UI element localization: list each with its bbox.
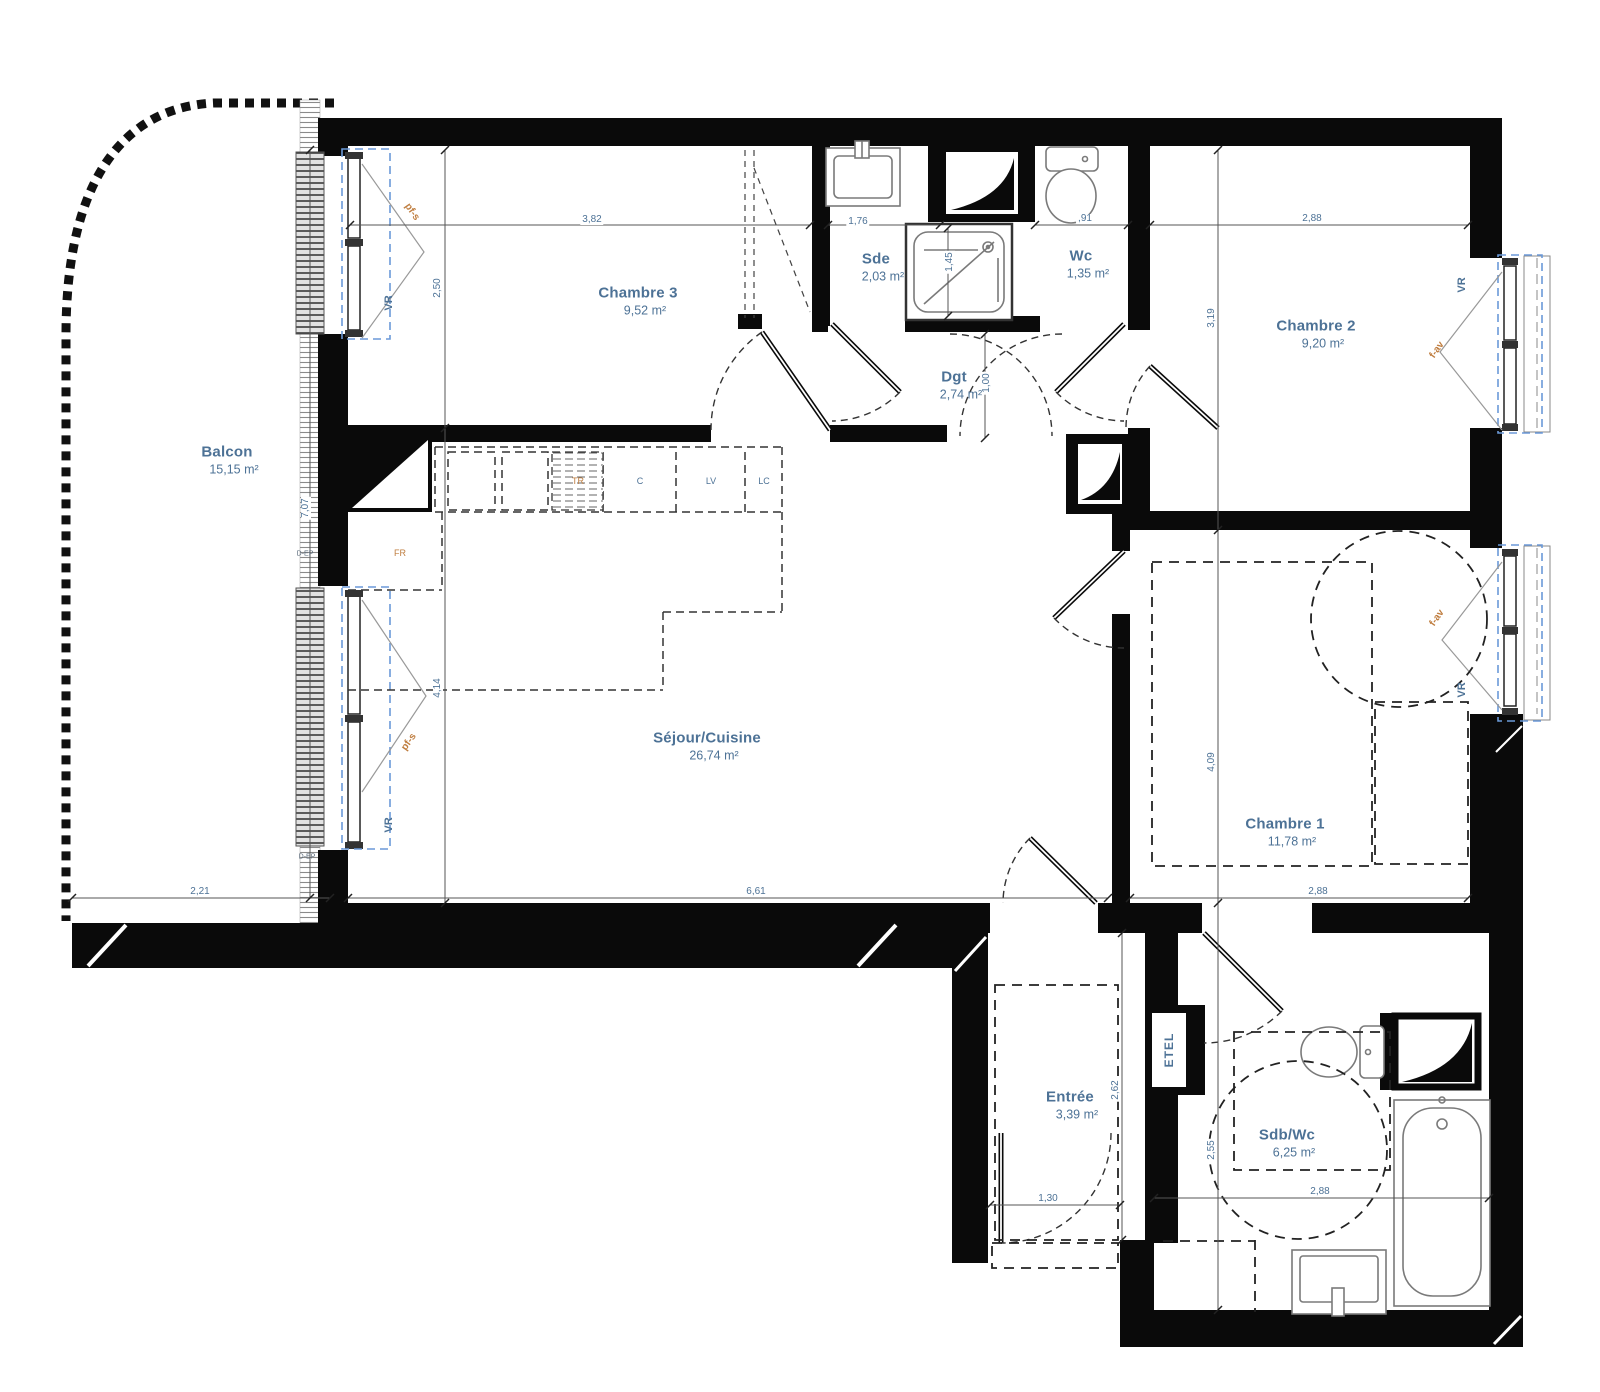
room-label-entree: Entrée 3,39 m² xyxy=(1046,1089,1094,1122)
vr-label-sejour: VR xyxy=(383,817,395,832)
dim-sejour-width: 6,61 xyxy=(744,887,767,897)
sink-drainer-label: TR xyxy=(571,476,585,486)
dim-entree-height: 2,62 xyxy=(1111,1078,1121,1101)
dim-balcon-width: 2,21 xyxy=(188,887,211,897)
dim-shower-height: 1,45 xyxy=(945,250,955,273)
sdb-toilet-icon xyxy=(1301,1026,1384,1078)
doormat-outline xyxy=(992,1243,1118,1268)
rain-pipe-label-2: D-EP xyxy=(299,854,316,861)
sde-sink-icon xyxy=(826,141,900,206)
room-label-chambre1: Chambre 1 11,78 m² xyxy=(1245,816,1324,849)
vr-label-chambre3: VR xyxy=(383,295,395,310)
dim-sde-width: 1,76 xyxy=(846,217,869,227)
turning-circle-chambre1 xyxy=(1311,531,1487,707)
bathtub-icon xyxy=(1394,1097,1490,1306)
room-label-chambre2: Chambre 2 9,20 m² xyxy=(1276,318,1355,351)
walls xyxy=(72,118,1523,1347)
room-label-wc: Wc 1,35 m² xyxy=(1060,248,1102,281)
washer-column-label: LC xyxy=(757,476,771,486)
room-label-sejour: Séjour/Cuisine 26,74 m² xyxy=(653,730,761,763)
dim-entree-width: 1,30 xyxy=(1036,1194,1059,1204)
room-label-sde: Sde 2,03 m² xyxy=(855,251,897,284)
fridge-label: FR xyxy=(393,548,407,558)
dishwasher-label: LV xyxy=(705,476,717,486)
rain-pipe-label-1: D-EP xyxy=(297,551,314,558)
window-sejour xyxy=(296,587,426,849)
dim-sdb-width: 2,88 xyxy=(1308,1187,1331,1197)
dim-ch3-height: 2,50 xyxy=(433,276,443,299)
floorplan-drawing xyxy=(0,0,1600,1392)
window-chambre3 xyxy=(296,149,424,339)
vr-label-chambre1: VR xyxy=(1456,682,1468,697)
dim-ch2-height: 3,19 xyxy=(1207,306,1217,329)
room-label-dgt: Dgt 2,74 m² xyxy=(933,369,975,402)
shower-icon xyxy=(906,224,1012,320)
wc-toilet-icon xyxy=(1046,147,1098,223)
dim-ch2-width: 2,88 xyxy=(1300,214,1323,224)
dim-balcon-height: 7,07 xyxy=(301,496,311,519)
sdb-sink-icon xyxy=(1292,1250,1386,1316)
floor-plan-canvas: Balcon 15,15 m² Chambre 3 9,52 m² Sde 2,… xyxy=(0,0,1600,1392)
etel-shaft-label: ETEL xyxy=(1162,1033,1176,1068)
dim-sejour-height: 4,14 xyxy=(433,676,443,699)
room-label-chambre3: Chambre 3 9,52 m² xyxy=(598,285,677,318)
dim-dgt-width: 1,00 xyxy=(982,371,992,394)
vr-label-chambre2: VR xyxy=(1456,277,1468,292)
dim-sdb-height: 2,55 xyxy=(1207,1138,1217,1161)
dim-wc-width: ,91 xyxy=(1076,214,1094,224)
room-label-sdb: Sdb/Wc 6,25 m² xyxy=(1259,1127,1315,1160)
dim-ch1-width: 2,88 xyxy=(1306,887,1329,897)
dim-ch1-height: 4,09 xyxy=(1207,750,1217,773)
room-label-balcon: Balcon 15,15 m² xyxy=(201,444,252,477)
dim-ch3-width: 3,82 xyxy=(580,215,603,225)
balcony-railing xyxy=(66,103,334,921)
cooker-label: C xyxy=(636,476,645,486)
